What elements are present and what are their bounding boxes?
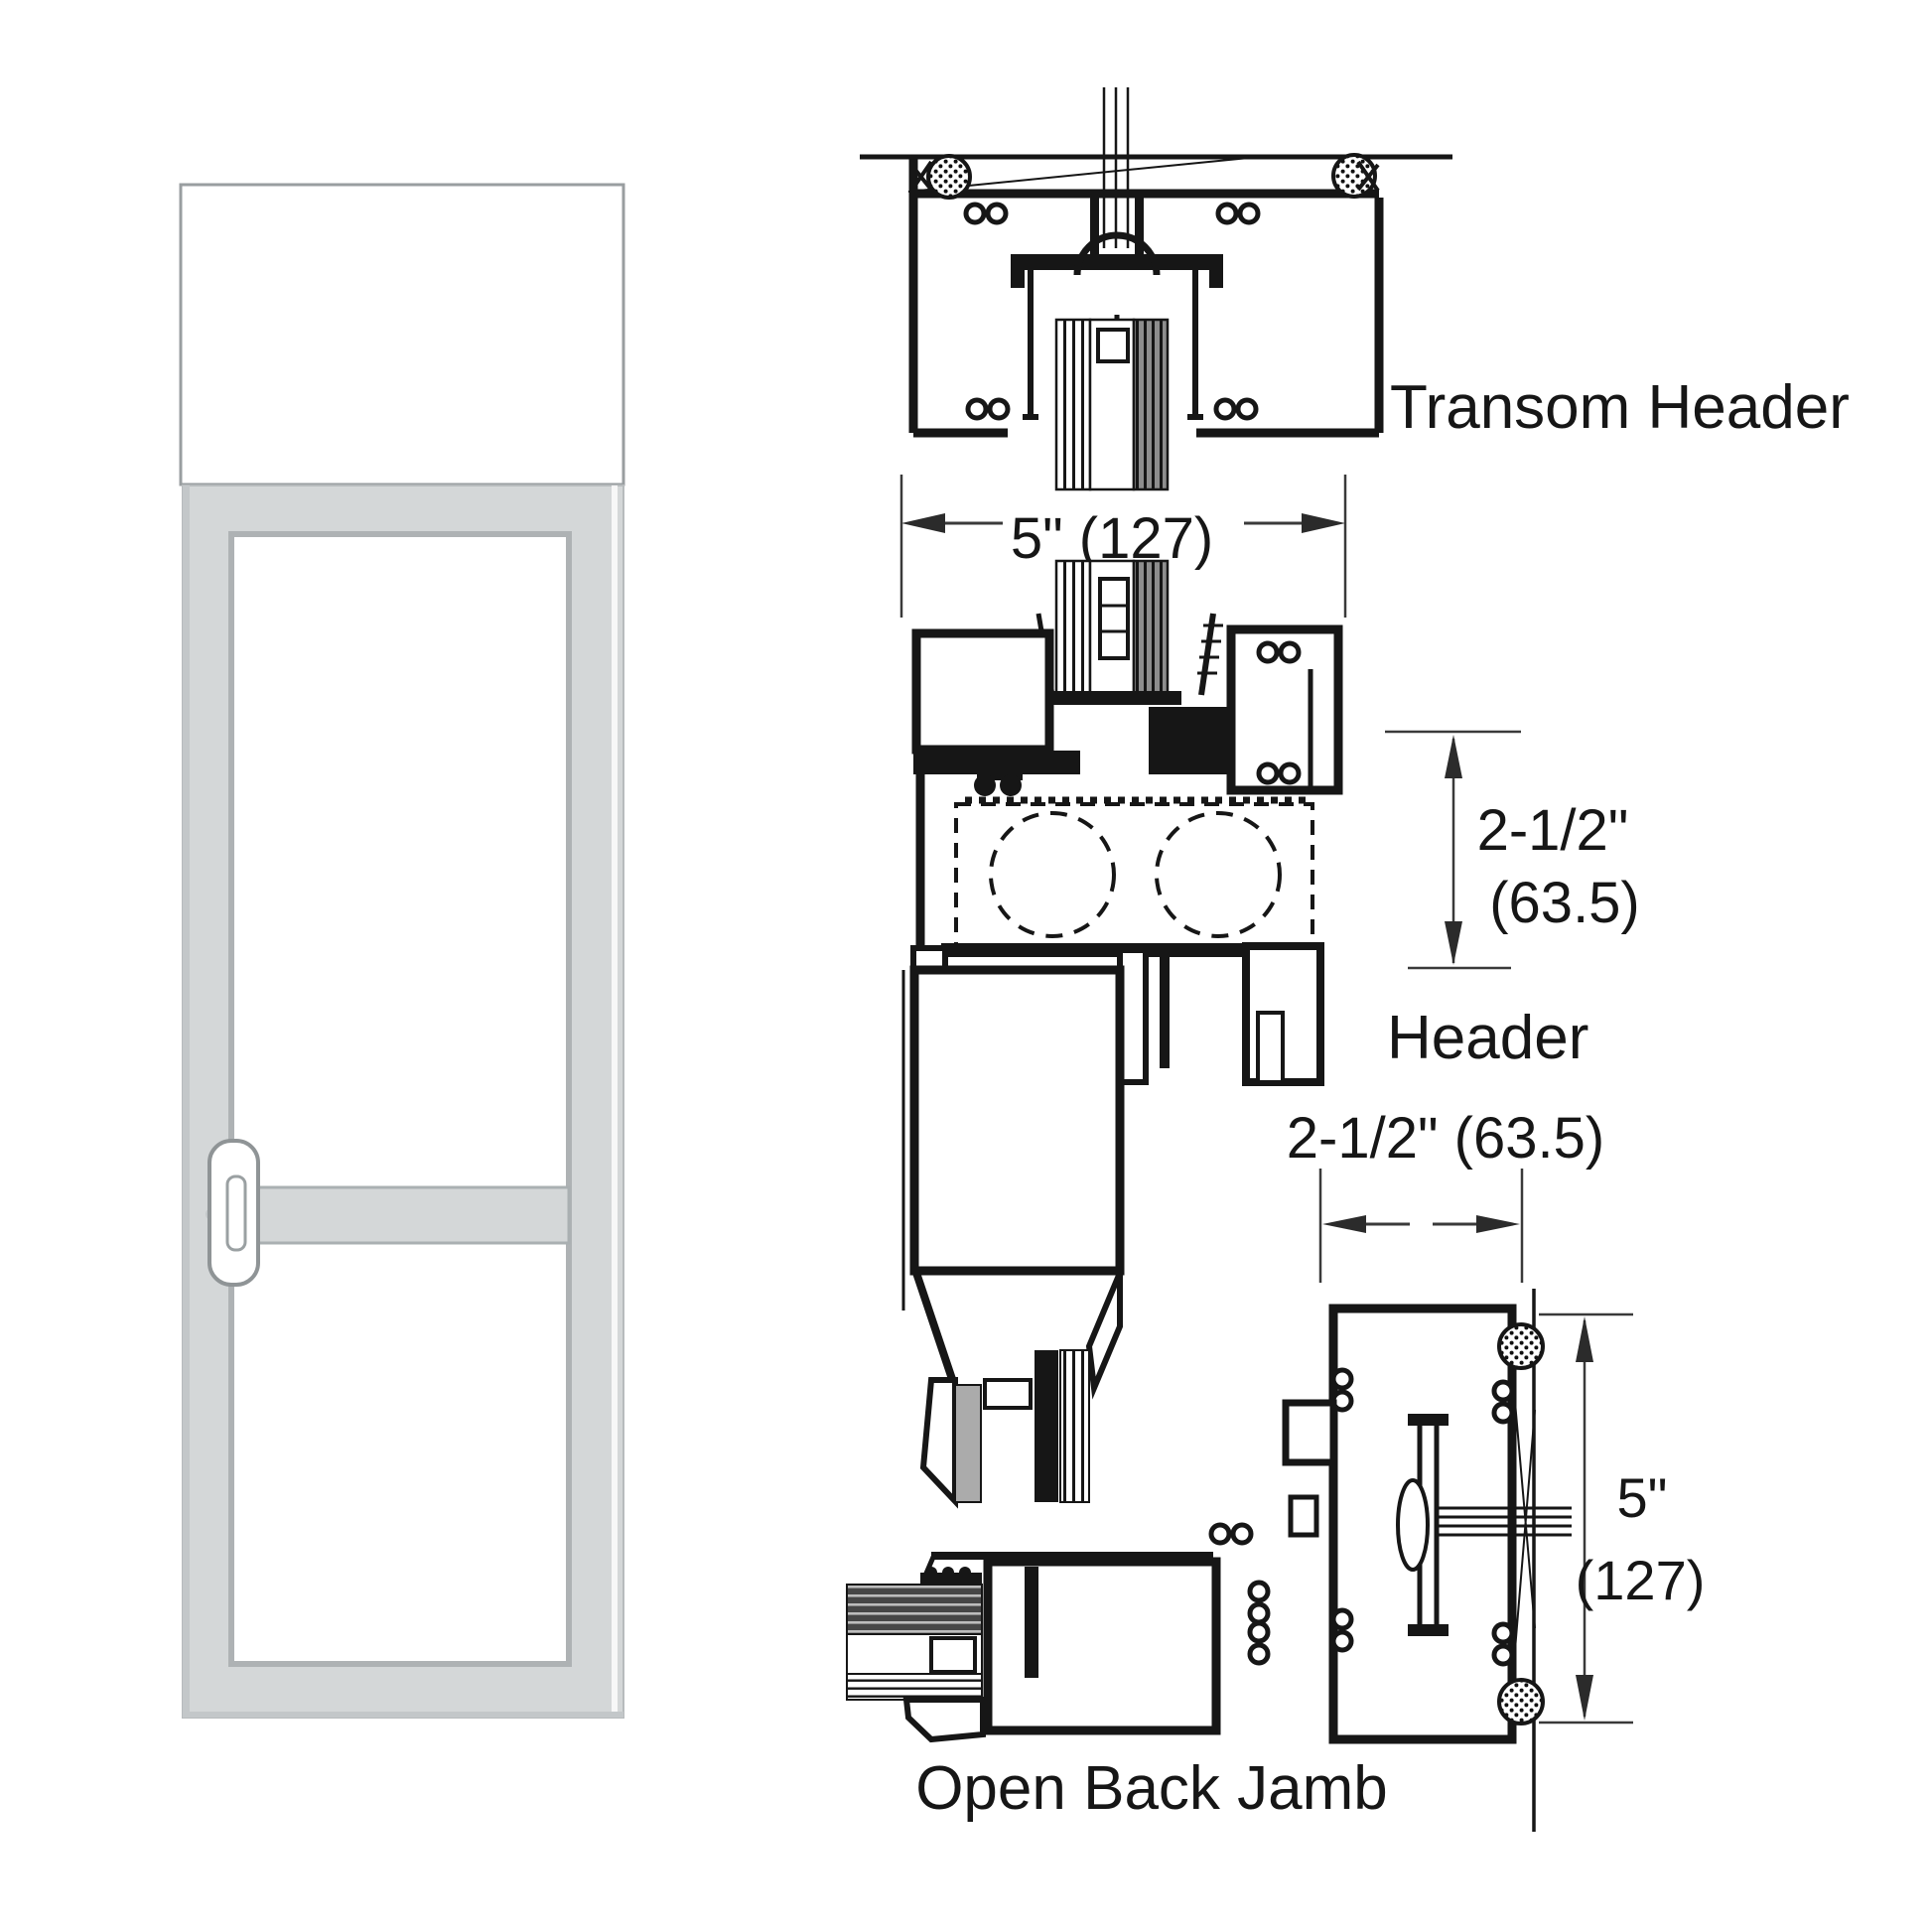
dim-arrow-down-icon (1445, 921, 1462, 965)
door-stop-assembly (1120, 946, 1320, 1082)
dim-arrow-right-icon (1302, 513, 1345, 533)
label-open-back-jamb: Open Back Jamb (915, 1754, 1388, 1823)
dim-text-header-height-top: 2-1/2" (1477, 798, 1629, 863)
glass-centerlines (1104, 87, 1128, 248)
dim-arrow-up-icon (1445, 735, 1462, 778)
transom-glass-panel (181, 185, 623, 484)
glazing-gasket-right-icon (1197, 614, 1223, 695)
snap-clip-icon (1218, 205, 1258, 222)
glazing-bead-left-icon (923, 1380, 955, 1501)
dim-text-jamb-height-bottom: (127) (1576, 1549, 1706, 1611)
door-frame-bottom-edge (183, 1712, 623, 1718)
dim-text-jamb-height-top: 5" (1616, 1466, 1667, 1529)
anchor-hole-dashed-icon (1157, 813, 1280, 936)
door-glass (231, 534, 569, 1664)
gasket-backer-rod-icon (1499, 1680, 1543, 1724)
snap-clip-icon (968, 400, 1008, 418)
open-back-jamb-section: 5" (127) Open Back Jamb (847, 1289, 1705, 1832)
header-reinforcement-dashed (956, 800, 1312, 946)
transom-glazing-unit (1056, 320, 1168, 489)
door-mid-rail (231, 1187, 569, 1243)
door-glazing-unit-plan (847, 1567, 983, 1739)
dim-arrow-down-icon (1576, 1675, 1593, 1721)
dim-arrow-left-icon (901, 513, 945, 533)
dimension-jamb-depth: 2-1/2" (63.5) (1287, 1106, 1604, 1283)
dim-arrow-left-icon (1322, 1215, 1366, 1233)
transom-header-section: 5" (127) Transom Header (860, 87, 1850, 618)
snap-clip-icon (1216, 400, 1256, 418)
snap-clip-icon (1211, 1525, 1251, 1543)
gasket-backer-rod-icon (1499, 1324, 1543, 1368)
dim-arrow-right-icon (1476, 1215, 1520, 1233)
dimension-header-height: 2-1/2" (63.5) (1385, 732, 1640, 968)
glazing-bead-right-icon (1089, 1273, 1120, 1388)
label-transom-header: Transom Header (1390, 373, 1850, 442)
door-frame-right-edge (612, 485, 618, 1718)
snap-clip-icon (1250, 1623, 1268, 1663)
dim-text-header-height-bottom: (63.5) (1489, 871, 1640, 935)
door-stop-profile (1286, 1403, 1333, 1462)
technical-drawing-canvas: 5" (127) Transom Header (0, 0, 1932, 1932)
dim-text-jamb-depth: 2-1/2" (63.5) (1287, 1106, 1604, 1171)
drawing-page: 5" (127) Transom Header (0, 0, 1932, 1932)
transom-glazing-unit-lower (1044, 561, 1181, 705)
door-elevation (181, 185, 623, 1718)
snap-clip-icon (1250, 1583, 1268, 1622)
glazing-bead-plan-icon (906, 1700, 983, 1739)
door-pull-handle (209, 1141, 258, 1285)
door-glazing-unit (955, 1350, 1089, 1502)
weatherstrip-holder (1291, 1497, 1316, 1535)
snap-clip-icon (966, 205, 1006, 222)
dim-arrow-up-icon (1576, 1316, 1593, 1362)
door-frame-left-edge (183, 485, 190, 1718)
label-header: Header (1387, 1004, 1588, 1072)
gasket-shim-icon (928, 156, 970, 198)
anchor-hole-dashed-icon (991, 813, 1114, 936)
